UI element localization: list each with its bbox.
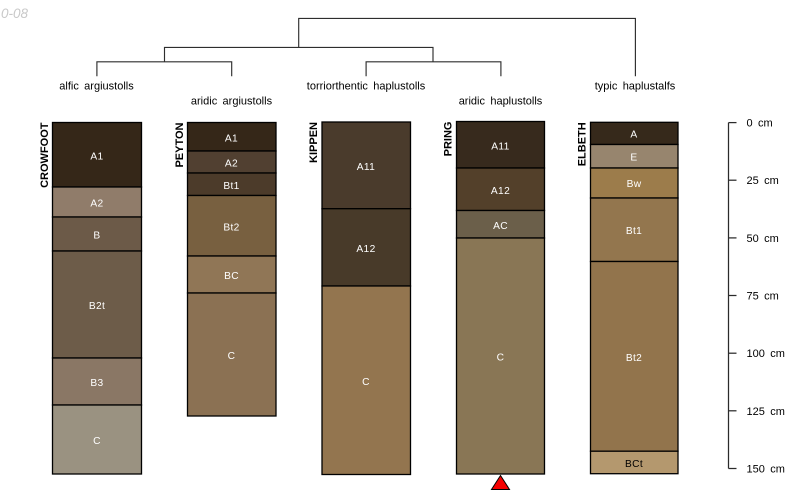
svg-text:0 cm: 0 cm <box>747 118 773 130</box>
svg-text:BC: BC <box>224 271 239 282</box>
svg-text:75 cm: 75 cm <box>747 291 779 303</box>
svg-text:aridic haplustolls: aridic haplustolls <box>459 96 543 108</box>
svg-text:A1: A1 <box>225 133 238 144</box>
svg-text:Bt2: Bt2 <box>223 222 239 233</box>
svg-text:ELBETH: ELBETH <box>577 122 589 166</box>
svg-text:25 cm: 25 cm <box>747 175 779 187</box>
svg-text:50 cm: 50 cm <box>747 233 779 245</box>
svg-text:C: C <box>362 377 370 388</box>
svg-text:BCt: BCt <box>625 459 643 470</box>
svg-text:A2: A2 <box>90 198 103 209</box>
svg-text:torriorthentic haplustolls: torriorthentic haplustolls <box>307 81 426 93</box>
svg-text:Bw: Bw <box>627 179 642 190</box>
svg-text:150 cm: 150 cm <box>747 464 785 476</box>
svg-text:A11: A11 <box>491 141 509 152</box>
svg-text:100 cm: 100 cm <box>747 348 785 360</box>
svg-text:PRING: PRING <box>443 122 455 157</box>
svg-text:Bt2: Bt2 <box>626 353 642 364</box>
svg-text:Bt1: Bt1 <box>223 181 239 192</box>
svg-text:Bt1: Bt1 <box>626 226 642 237</box>
svg-text:KIPPEN: KIPPEN <box>308 122 320 163</box>
svg-text:typic haplustalfs: typic haplustalfs <box>595 81 676 93</box>
svg-text:PEYTON: PEYTON <box>174 122 186 167</box>
svg-text:alfic argiustolls: alfic argiustolls <box>59 81 134 93</box>
svg-text:C: C <box>228 351 236 362</box>
svg-text:0-08: 0-08 <box>1 6 29 21</box>
svg-text:A1: A1 <box>90 151 103 162</box>
svg-text:B3: B3 <box>90 378 103 389</box>
svg-text:CROWFOOT: CROWFOOT <box>39 122 51 188</box>
svg-text:A11: A11 <box>357 162 375 173</box>
svg-text:A2: A2 <box>225 158 238 169</box>
svg-text:C: C <box>93 436 101 447</box>
svg-text:AC: AC <box>493 221 508 232</box>
svg-text:A: A <box>630 129 637 140</box>
svg-text:aridic argiustolls: aridic argiustolls <box>191 96 273 108</box>
svg-text:A12: A12 <box>356 244 375 255</box>
svg-text:B: B <box>93 230 100 241</box>
svg-text:125 cm: 125 cm <box>747 406 785 418</box>
svg-text:E: E <box>630 152 637 163</box>
svg-text:A12: A12 <box>491 186 510 197</box>
svg-text:B2t: B2t <box>89 301 105 312</box>
svg-text:C: C <box>497 352 505 363</box>
